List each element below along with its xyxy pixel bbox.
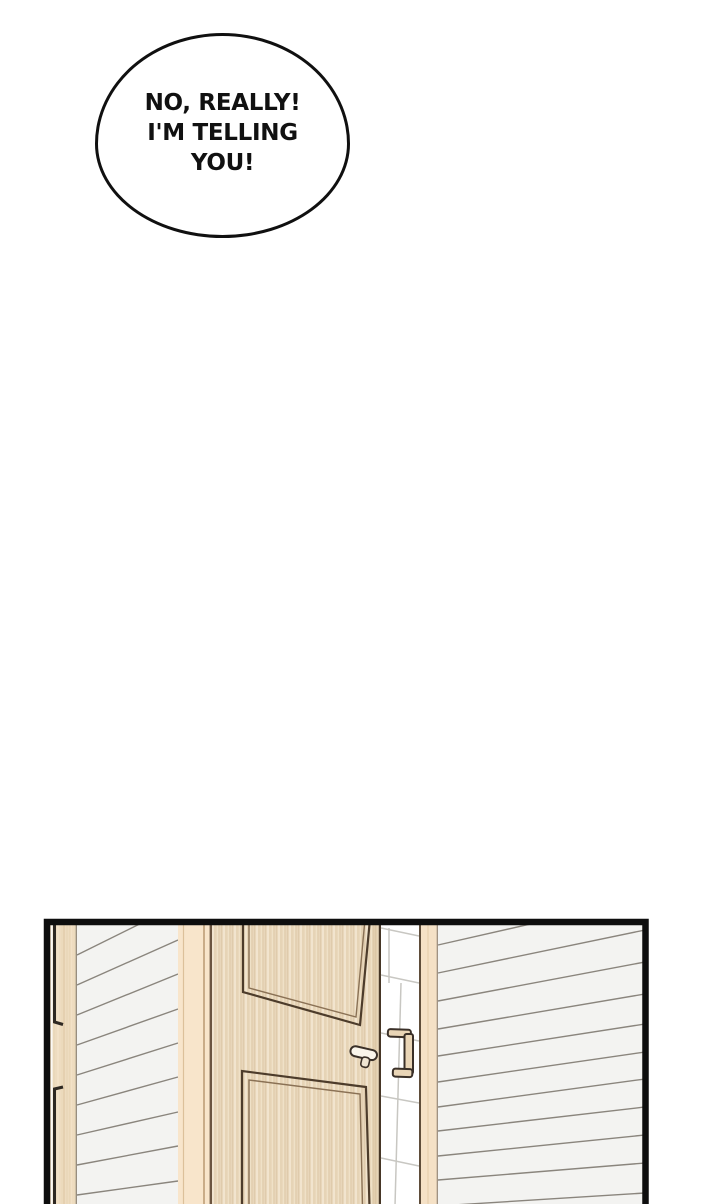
left-door-jamb — [50, 925, 77, 1204]
tiled-wall-gap — [381, 925, 419, 1204]
right-siding-wall — [438, 898, 645, 1204]
right-frame-strip — [419, 925, 438, 1204]
panel-door-scene — [0, 0, 720, 1204]
left-siding-wall — [77, 905, 178, 1204]
comic-page: NO, REALLY! I'M TELLING YOU! — [0, 0, 720, 1204]
door-frame-strip — [178, 925, 212, 1204]
wooden-door — [212, 919, 381, 1204]
